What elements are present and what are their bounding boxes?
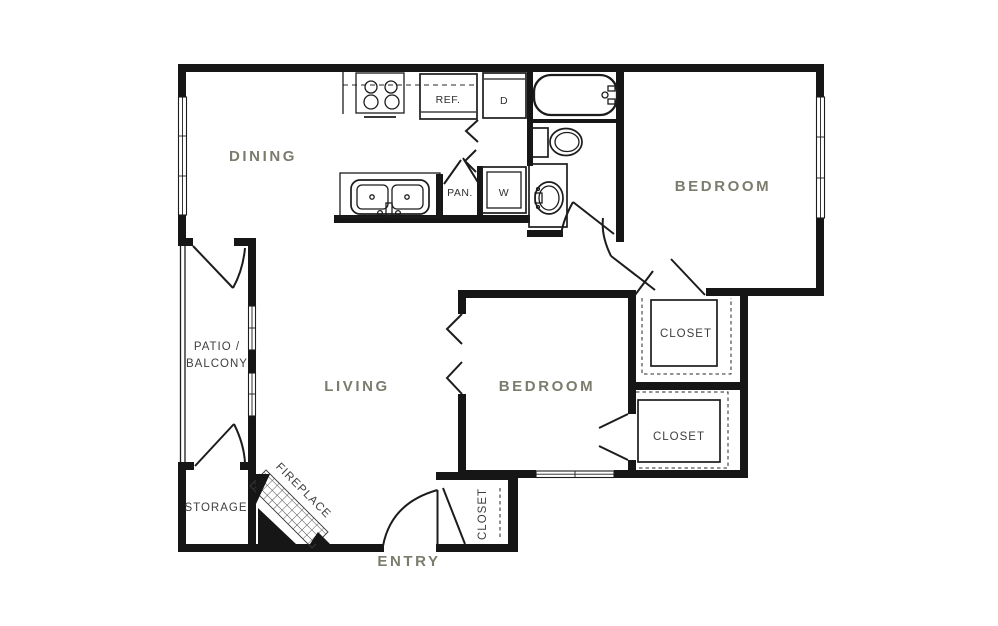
wall-closets-divider [628,382,748,390]
window-patio-lower [249,373,256,416]
kitchen: REF. D W PAN. [340,72,526,217]
window-dining-left [179,97,187,215]
wall-entry-closet-bottom [436,544,518,552]
closet-bedroom-interior [636,392,728,468]
closet-bedroom-label: CLOSET [653,431,705,443]
refrigerator-label: REF. [436,94,461,106]
wall-bottom-main [178,544,384,552]
washer: W [482,167,526,213]
bathroom [529,75,617,227]
wall-right-lower [816,218,824,296]
door-entry-closet-angled [443,488,465,544]
wall-bedroom2-bottom-right [614,470,748,478]
kitchen-sink [340,173,440,217]
refrigerator: REF. [420,74,477,119]
wall-kitchen-counter-bottom [334,215,530,223]
wall-dining-bottom-left [178,238,193,246]
wall-top [178,64,824,72]
bathtub [534,75,617,115]
living-label: LIVING [324,378,390,395]
window-patio-upper [249,306,256,350]
washer-label: W [499,187,509,199]
door-entry [383,490,438,546]
dining-label: DINING [229,148,297,165]
entry-label: ENTRY [377,553,440,570]
wall-bedroom2-bottom-left [458,470,536,478]
wall-patio-right-b [248,350,256,373]
patio-outer-wall [181,246,186,462]
storage-label: STORAGE [184,502,247,514]
opening-kitchen-chevrons [465,120,478,172]
toilet [531,128,582,157]
door-bathroom [561,202,614,235]
closet-entry-label: CLOSET [477,488,489,540]
pantry-label: PAN. [447,187,473,199]
wall-storage-top-right [240,462,256,470]
door-patio-to-storage [195,424,245,466]
wall-mid-right [706,288,824,296]
wall-left-upper [178,64,186,97]
wall-closet1-left [628,290,636,390]
patio-label-line1: PATIO / [194,341,240,353]
dryer-label: D [500,95,508,107]
wall-bedroom2-left-top [458,290,466,314]
fireplace: FIREPLACE [250,461,333,548]
door-closet-bedroom-bifold [599,414,628,460]
window-bedroom2-bottom [536,471,614,478]
wall-bedroom2-left-bottom [458,394,466,478]
door-closet-hall-bifold [635,259,705,295]
bedroom-top-label: BEDROOM [675,178,772,195]
wall-bath-left [527,72,533,166]
window-bedroom-right [817,97,825,218]
closet-hall-label: CLOSET [660,328,712,340]
wall-closet2-left-top [628,390,636,414]
bedroom-mid-label: BEDROOM [499,378,596,395]
wall-right-upper [816,64,824,97]
opening-bedroom2-chevrons [447,314,462,394]
bathroom-sink [529,164,567,227]
wall-mid-left [458,290,630,298]
door-dining-to-patio [193,246,245,288]
patio-label-line2: BALCONY [186,358,248,370]
wall-entry-closet-right [508,472,518,552]
stove [356,73,404,117]
floor-plan: REF. D W PAN. [0,0,998,626]
wall-tub-bottom [533,119,617,123]
wall-patio-right-a [248,238,256,306]
dryer: D [483,73,526,118]
wall-bath-bottom [527,230,563,237]
